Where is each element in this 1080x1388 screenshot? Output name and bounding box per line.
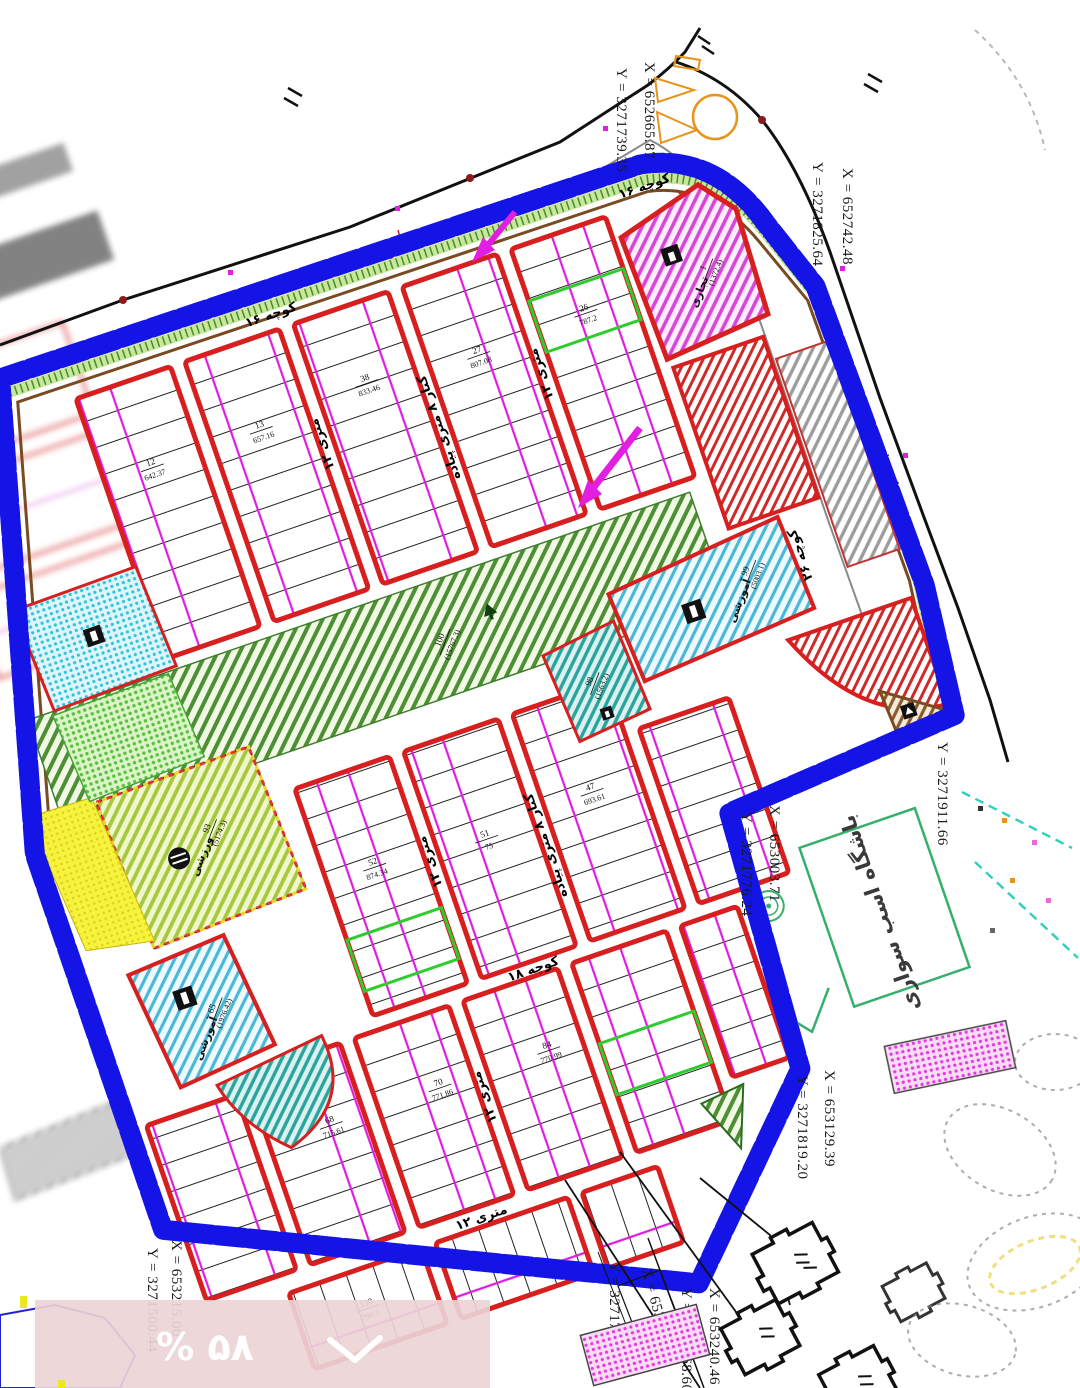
subdivision-group: 100 (15767.3) xyxy=(0,116,1080,1388)
coord-c5y: Y = 3271819.20 xyxy=(794,1075,810,1180)
island-triangle xyxy=(657,112,697,143)
horse-club-label: باشگاه اسب سواری xyxy=(834,812,925,1015)
road-node xyxy=(119,296,127,304)
road-tick xyxy=(603,126,608,131)
progress-overlay-panel[interactable] xyxy=(35,1300,490,1388)
road-tick xyxy=(840,266,845,271)
coord-c1y: Y = 3271739.35 xyxy=(613,68,629,173)
coord-c1x: X = 652665.87 xyxy=(641,62,657,159)
coord-c2x: X = 652742.48 xyxy=(839,168,855,265)
road-tick xyxy=(228,270,233,275)
coord-c3y: Y = 3271776.24 xyxy=(738,812,754,917)
coord-c3x: X = 653003.71 xyxy=(766,805,782,902)
coord-c4y: Y = 3271911.66 xyxy=(934,742,950,846)
utility-dashed-lines xyxy=(962,792,1078,958)
progress-percent-label: % ۵۸ xyxy=(156,1325,254,1369)
coord-c8x: X = 653240.46 xyxy=(706,1288,722,1385)
building xyxy=(743,1214,846,1312)
road-node xyxy=(466,174,474,182)
road-tick xyxy=(903,453,908,458)
overlay-corner-tick xyxy=(20,1296,27,1308)
overlay-corner-tick xyxy=(58,1380,65,1388)
road-tick xyxy=(395,206,400,211)
annotation-scribble xyxy=(698,36,714,54)
coord-c5x: X = 653129.39 xyxy=(821,1070,837,1167)
pink-parcel xyxy=(884,1021,1015,1094)
building xyxy=(811,1338,906,1388)
island-triangle xyxy=(655,78,694,102)
coord-c2y: Y = 3271825.64 xyxy=(809,162,825,267)
map-canvas[interactable]: میله سواره 100 (15767.3) xyxy=(0,0,1080,1388)
building xyxy=(713,1292,808,1383)
annotation-scribble xyxy=(864,74,882,92)
roundabout-circle xyxy=(693,95,737,139)
annotation-scribble xyxy=(284,88,302,106)
road-node xyxy=(758,116,766,124)
progress-overlay[interactable]: % ۵۸ xyxy=(20,1296,490,1388)
cadastral-map-page: میله سواره 100 (15767.3) xyxy=(0,0,1080,1388)
contour-yellow xyxy=(982,1225,1080,1305)
building xyxy=(875,1256,951,1328)
